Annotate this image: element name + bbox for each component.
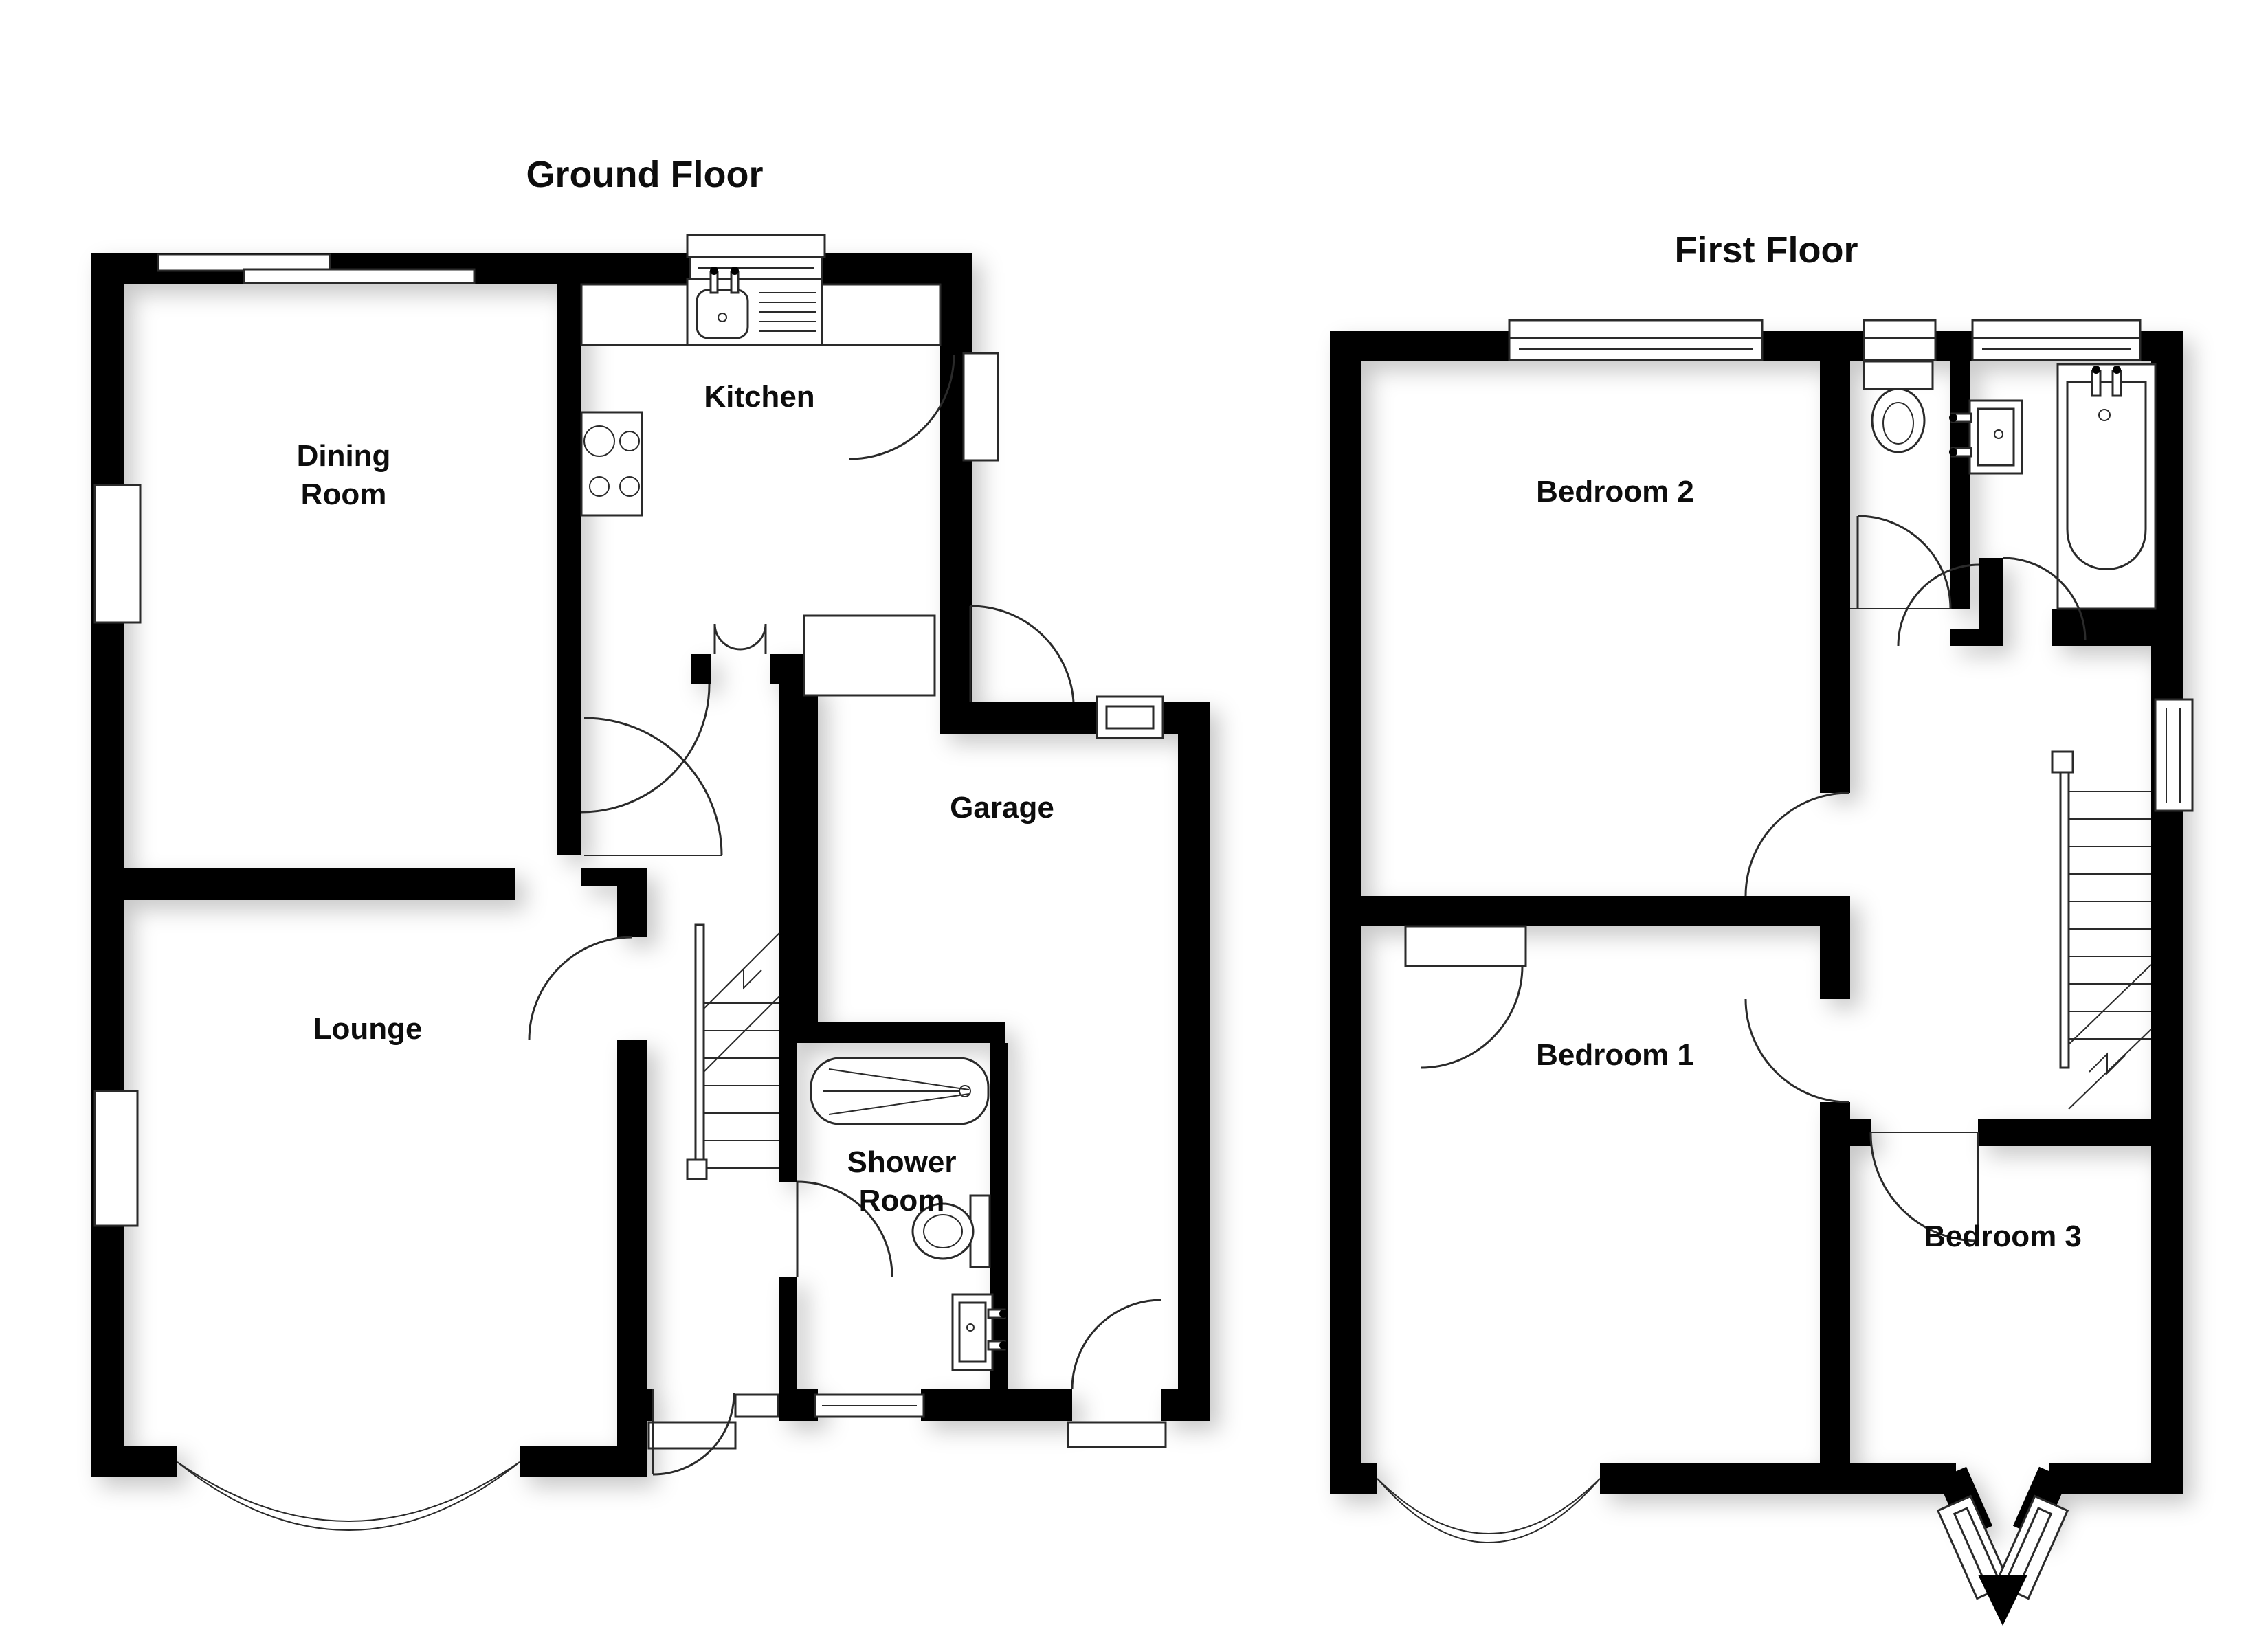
kitchen-window [687,235,825,279]
room-label-bedroom2: Bedroom 2 [1536,475,1694,508]
dining-chimney-recess [95,485,140,622]
understairs-cupboard-doors [715,624,766,654]
wc-door [1850,516,1950,609]
lounge-chimney-recess [95,1091,137,1226]
bedroom2-window [1509,320,1762,360]
ground-floor-walls [91,253,1210,1477]
wc-window [1864,320,1935,360]
ground-floor-title: Ground Floor [526,154,764,195]
shower-room-window [815,1395,924,1417]
bedroom1-door [1746,999,1849,1102]
room-label-dining-2: Room [301,478,387,511]
first-floor-plan: First Floor [1330,229,2192,1626]
garage-rear-door [1072,1300,1161,1389]
room-label-shower-1: Shower [847,1145,957,1179]
garage-side-door [970,606,1074,702]
shower-tray-icon [811,1058,988,1124]
bedroom1-cupboard [1405,926,1526,1068]
store-recess [804,616,935,695]
kitchen-sink-icon [687,267,822,345]
garage-rear-step [1068,1422,1166,1447]
hob-icon [581,412,642,515]
dining-door [584,718,722,855]
room-label-garage: Garage [950,791,1054,824]
room-label-lounge: Lounge [313,1012,423,1046]
bathroom-window [1972,320,2140,360]
lounge-door [529,937,632,1040]
floorplan-page: Ground Floor [0,0,2268,1649]
hall-window [735,1395,778,1417]
lounge-bay-window [177,1462,520,1530]
garage-window [1097,697,1163,738]
bathtub-icon [2058,364,2155,609]
landing-window [2155,699,2192,811]
first-floor-stairs-icon [2052,752,2151,1109]
ground-floor-stairs-icon [687,925,779,1179]
bedroom2-door [1746,793,1849,896]
first-floor-title: First Floor [1675,229,1858,271]
first-floor-fixtures [1405,361,2155,1109]
bedroom3-corner-bay-window [1938,1496,2067,1626]
wc-toilet-icon [1864,361,1933,452]
kitchen-side-door [849,353,998,460]
bedroom1-bay-window [1377,1479,1600,1543]
ground-floor-plan: Ground Floor [91,154,1210,1530]
room-label-shower-2: Room [859,1184,945,1218]
room-label-bedroom3: Bedroom 3 [1924,1220,2082,1253]
floorplan-canvas: Ground Floor [0,0,2268,1649]
kitchen-hall-door [581,684,709,812]
room-label-kitchen: Kitchen [704,380,814,414]
room-label-bedroom1: Bedroom 1 [1536,1038,1694,1072]
room-label-dining-1: Dining [297,439,391,473]
